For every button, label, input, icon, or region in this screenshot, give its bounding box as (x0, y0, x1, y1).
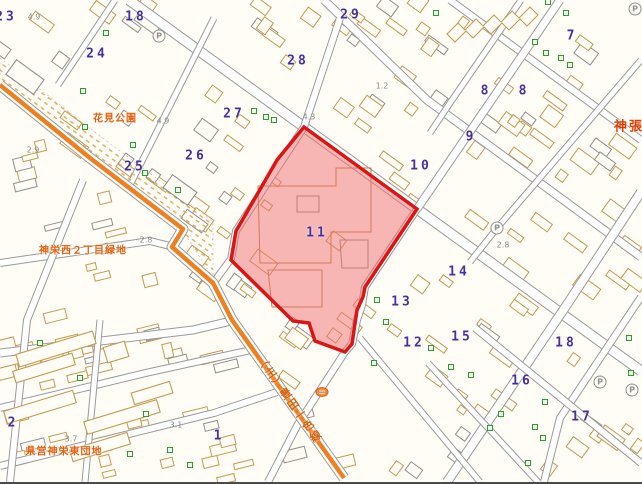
map-viewport[interactable]: 2318242928277889252610111413121518161712… (0, 0, 642, 484)
map-canvas[interactable] (0, 0, 642, 482)
monument-symbol-icon (316, 388, 328, 397)
